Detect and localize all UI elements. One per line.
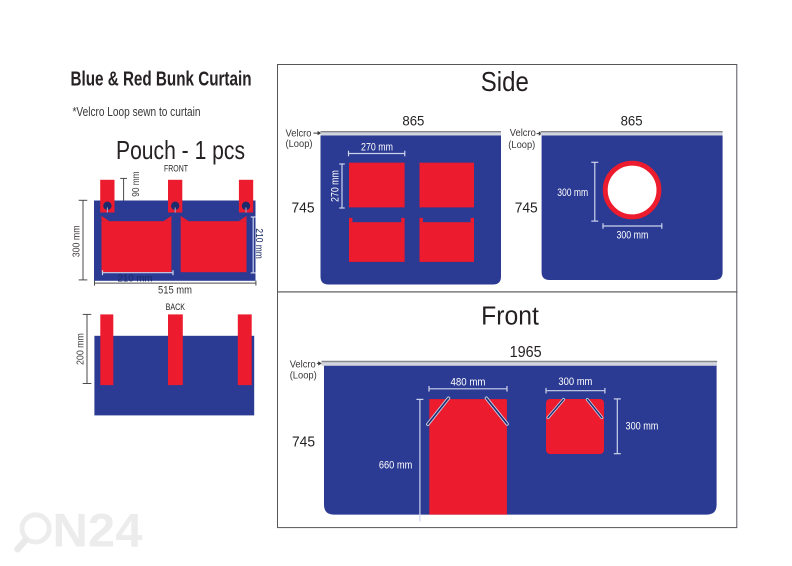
svg-text:Side: Side <box>481 66 529 97</box>
svg-text:270 mm: 270 mm <box>361 142 393 154</box>
svg-text:BACK: BACK <box>166 302 185 312</box>
svg-text:300 mm: 300 mm <box>558 376 592 388</box>
svg-text:515 mm: 515 mm <box>158 285 192 297</box>
svg-text:300 mm: 300 mm <box>626 420 659 432</box>
svg-text:865: 865 <box>402 113 424 129</box>
svg-text:Velcro: Velcro <box>286 129 312 140</box>
svg-text:300 mm: 300 mm <box>557 187 588 199</box>
svg-text:745: 745 <box>292 434 315 451</box>
svg-text:*Velcro Loop sewn to curtain: *Velcro Loop sewn to curtain <box>73 105 201 119</box>
svg-text:300 mm: 300 mm <box>616 229 648 241</box>
svg-text:(Loop): (Loop) <box>290 371 317 382</box>
svg-text:Front: Front <box>481 303 539 331</box>
svg-text:210 mm: 210 mm <box>253 228 264 258</box>
svg-text:FRONT: FRONT <box>164 164 188 174</box>
svg-text:300 mm: 300 mm <box>71 225 82 257</box>
svg-text:Pouch - 1 pcs: Pouch - 1 pcs <box>116 135 245 165</box>
svg-text:270 mm: 270 mm <box>330 170 342 202</box>
svg-text:(Loop): (Loop) <box>286 139 313 150</box>
svg-text:Velcro: Velcro <box>510 128 536 139</box>
svg-text:865: 865 <box>621 113 643 129</box>
svg-text:1965: 1965 <box>510 344 542 361</box>
svg-text:90 mm: 90 mm <box>131 171 142 196</box>
svg-text:480 mm: 480 mm <box>451 377 486 389</box>
svg-text:(Loop): (Loop) <box>508 140 535 151</box>
svg-text:745: 745 <box>292 199 315 216</box>
svg-text:N24: N24 <box>53 503 143 556</box>
svg-text:Blue & Red Bunk Curtain: Blue & Red Bunk Curtain <box>71 67 252 90</box>
svg-text:200 mm: 200 mm <box>75 333 86 365</box>
svg-text:660 mm: 660 mm <box>379 460 412 472</box>
svg-text:745: 745 <box>515 200 538 217</box>
svg-text:Velcro: Velcro <box>290 360 316 371</box>
